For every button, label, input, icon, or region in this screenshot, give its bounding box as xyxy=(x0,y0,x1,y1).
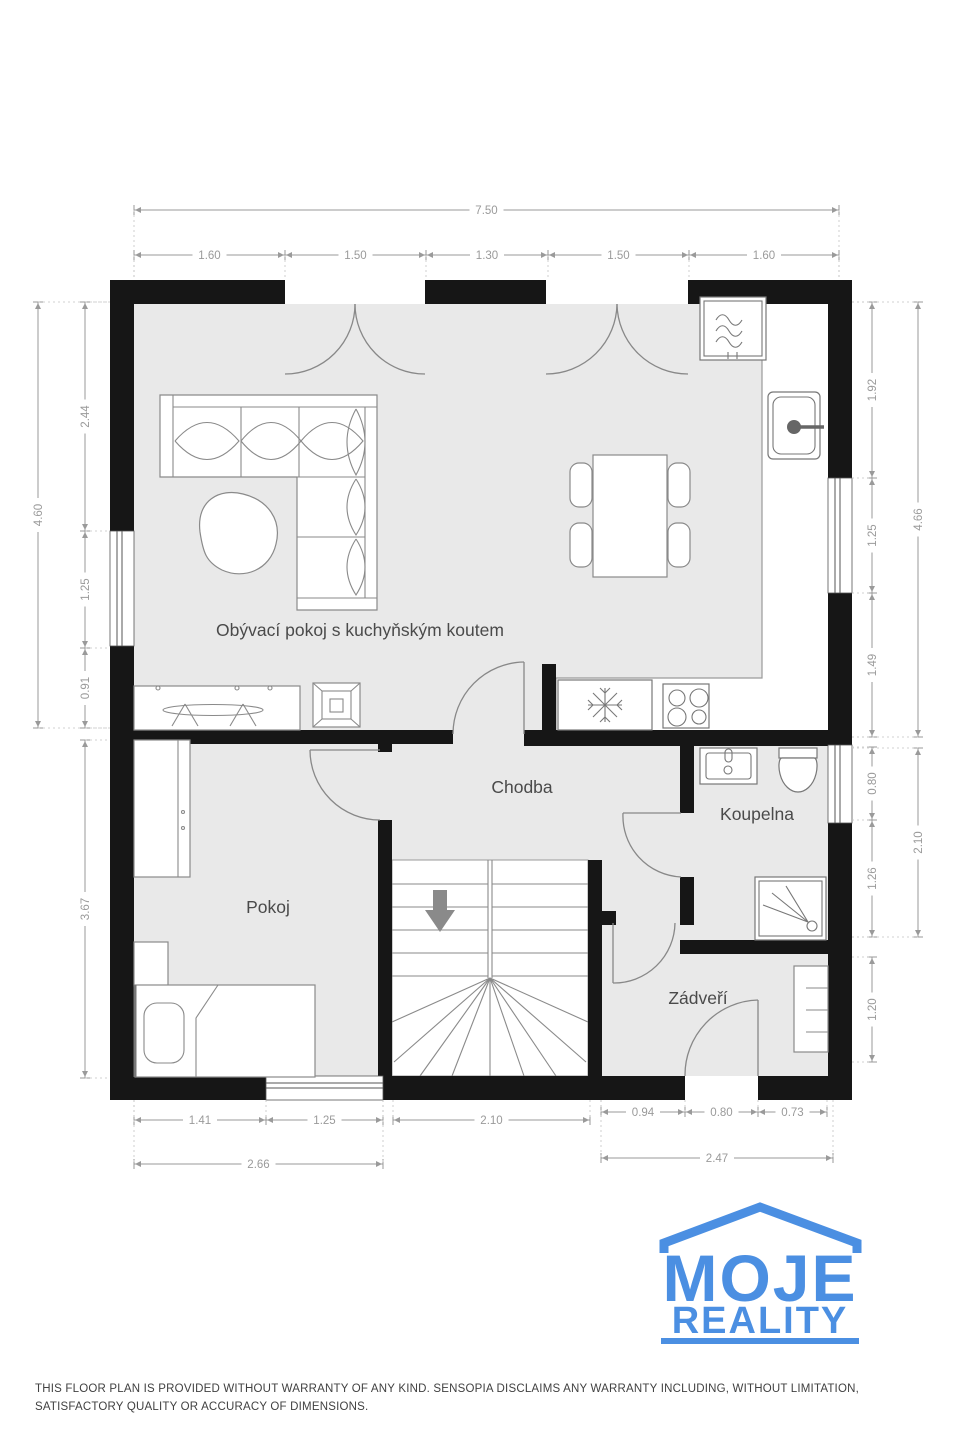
logo-underline xyxy=(661,1338,859,1344)
dimension-label: 1.25 xyxy=(867,524,879,546)
dimension-label: 2.66 xyxy=(247,1159,269,1171)
disclaimer-text: THIS FLOOR PLAN IS PROVIDED WITHOUT WARR… xyxy=(35,1380,880,1417)
floor-plan-page: Obývací pokoj s kuchyňským koutem Chodba… xyxy=(0,0,960,1440)
dimension-label: 1.25 xyxy=(80,578,92,600)
label-living-room: Obývací pokoj s kuchyňským koutem xyxy=(216,620,504,640)
dimension-label: 1.60 xyxy=(198,250,220,262)
dimension-label: 0.73 xyxy=(781,1107,803,1119)
dimension-label: 0.91 xyxy=(80,677,92,699)
snowflake-icon xyxy=(588,688,622,722)
kitchen-sink xyxy=(768,392,824,459)
dimension-label: 1.60 xyxy=(753,250,775,262)
boiler xyxy=(700,297,766,360)
dimension-label: 0.94 xyxy=(632,1107,655,1119)
fridge xyxy=(558,680,652,730)
dimension-label: 1.49 xyxy=(867,654,879,676)
window-right-upper xyxy=(828,478,852,593)
dimension-label: 2.10 xyxy=(480,1115,502,1127)
dimension-label: 0.80 xyxy=(710,1107,732,1119)
stove xyxy=(663,684,709,728)
dimension-label: 1.30 xyxy=(476,250,498,262)
shower xyxy=(755,877,826,940)
shoe-cabinet xyxy=(794,966,828,1052)
label-entry: Zádveří xyxy=(668,988,727,1008)
dimension-label: 1.50 xyxy=(607,250,629,262)
decor-frame xyxy=(313,683,360,727)
moje-reality-logo: MOJE REALITY xyxy=(661,1207,859,1344)
bathroom-sink xyxy=(700,748,757,784)
dimension-label: 1.26 xyxy=(867,867,879,889)
tv-stand xyxy=(134,686,300,730)
dimension-label: 1.20 xyxy=(867,998,879,1020)
wardrobe xyxy=(134,740,190,877)
label-bathroom: Koupelna xyxy=(720,804,794,824)
faucet-icon xyxy=(787,420,801,434)
floor-plan-drawing: Obývací pokoj s kuchyňským koutem Chodba… xyxy=(0,0,960,1440)
nightstand xyxy=(134,942,168,986)
dimension-label: 4.66 xyxy=(913,508,925,530)
bed xyxy=(135,985,315,1077)
dimension-label: 1.50 xyxy=(344,250,366,262)
staircase xyxy=(392,860,588,1076)
dimension-label: 2.10 xyxy=(913,831,925,853)
dimension-label: 7.50 xyxy=(475,205,497,217)
window-bedroom xyxy=(266,1076,383,1100)
window-bathroom xyxy=(828,745,852,823)
dimension-label: 1.25 xyxy=(313,1115,335,1127)
label-hallway: Chodba xyxy=(491,777,553,797)
dimension-label: 0.80 xyxy=(867,772,879,794)
label-room: Pokoj xyxy=(246,897,290,917)
dimension-label: 1.41 xyxy=(189,1115,211,1127)
logo-subtitle: REALITY xyxy=(672,1300,849,1342)
dimension-label: 4.60 xyxy=(33,504,45,526)
dimension-label: 3.67 xyxy=(80,898,92,920)
dimension-label: 2.47 xyxy=(706,1153,728,1165)
window-left xyxy=(110,531,134,646)
dimension-label: 1.92 xyxy=(867,379,879,401)
dimension-label: 2.44 xyxy=(80,405,92,428)
